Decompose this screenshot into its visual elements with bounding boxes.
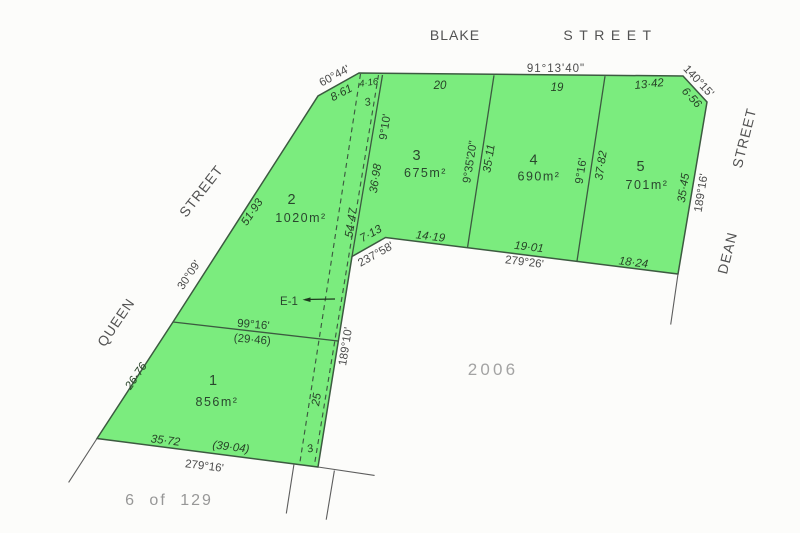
svg-text:91°13'40": 91°13'40" <box>527 63 585 75</box>
svg-text:E-1: E-1 <box>280 296 298 308</box>
svg-text:690m²: 690m² <box>518 170 561 184</box>
svg-text:2: 2 <box>287 192 296 208</box>
svg-text:5: 5 <box>636 159 645 175</box>
svg-text:3: 3 <box>412 148 421 164</box>
svg-text:STREET: STREET <box>563 27 657 43</box>
svg-text:1: 1 <box>209 373 218 389</box>
svg-text:19: 19 <box>551 82 564 94</box>
svg-text:25: 25 <box>310 392 324 408</box>
svg-text:701m²: 701m² <box>626 178 669 192</box>
svg-text:BLAKE: BLAKE <box>430 27 480 43</box>
svg-text:6 of 129: 6 of 129 <box>125 492 213 509</box>
svg-text:20: 20 <box>433 80 447 92</box>
svg-text:4: 4 <box>529 153 538 169</box>
svg-text:675m²: 675m² <box>404 166 447 180</box>
svg-text:856m²: 856m² <box>196 395 239 409</box>
svg-text:1020m²: 1020m² <box>275 211 326 225</box>
svg-text:2006: 2006 <box>468 360 519 379</box>
